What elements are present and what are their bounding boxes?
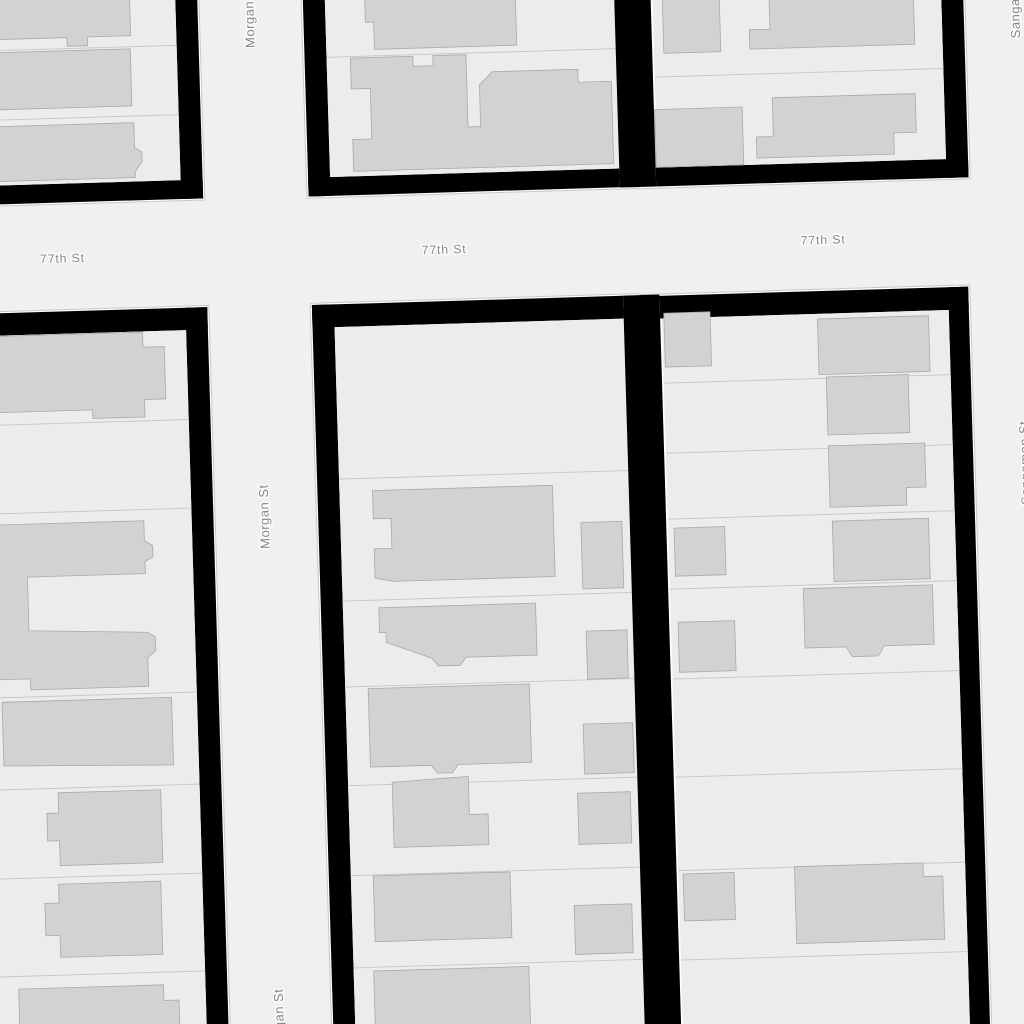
svg-text:Morgan St: Morgan St <box>271 988 288 1024</box>
svg-text:Morgan St: Morgan St <box>256 484 273 549</box>
svg-text:Morgan St: Morgan St <box>241 0 258 48</box>
svg-text:77th St: 77th St <box>800 232 845 247</box>
svg-text:77th St: 77th St <box>40 251 85 266</box>
svg-text:Sangamon St: Sangamon St <box>1016 420 1024 505</box>
svg-text:Sangamon St: Sangamon St <box>1006 0 1023 39</box>
svg-text:77th St: 77th St <box>421 242 466 257</box>
